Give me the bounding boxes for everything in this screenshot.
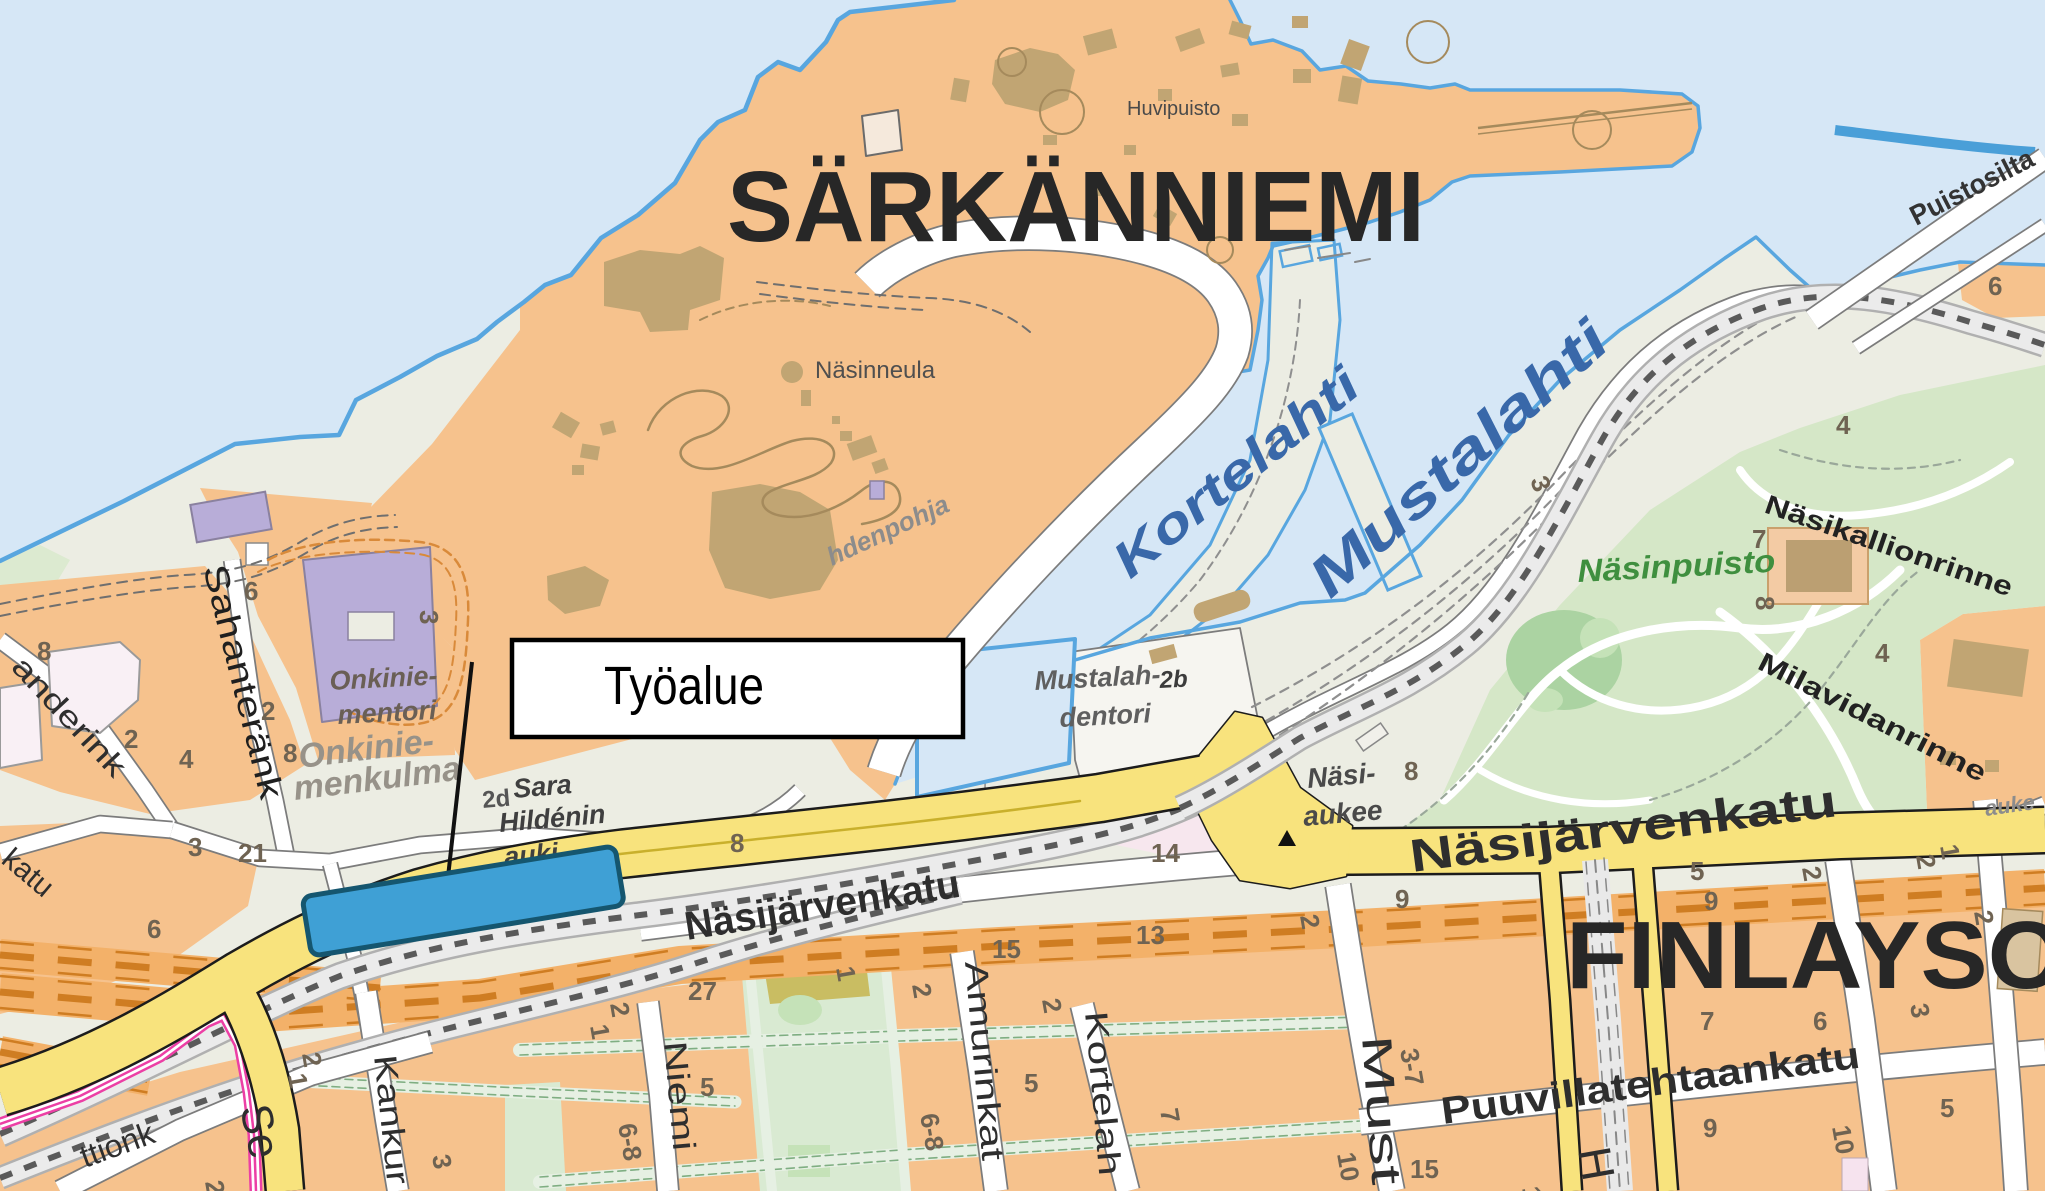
svg-text:5: 5: [1940, 1093, 1954, 1123]
svg-text:10: 10: [1331, 1150, 1366, 1184]
svg-text:3-7: 3-7: [1394, 1046, 1430, 1088]
svg-text:2d: 2d: [481, 785, 511, 814]
svg-text:9: 9: [1704, 886, 1718, 916]
svg-text:2: 2: [261, 696, 275, 726]
svg-text:6: 6: [244, 576, 258, 606]
svg-text:6: 6: [147, 914, 161, 944]
svg-text:Työalue: Työalue: [604, 656, 764, 716]
svg-text:2: 2: [124, 724, 138, 754]
svg-text:10: 10: [1826, 1123, 1861, 1157]
svg-text:8: 8: [1404, 756, 1418, 786]
svg-text:9: 9: [1395, 884, 1409, 914]
svg-text:Näsinneula: Näsinneula: [815, 357, 936, 384]
svg-text:27: 27: [688, 976, 717, 1006]
svg-text:6: 6: [1813, 1006, 1827, 1036]
svg-text:4: 4: [1875, 638, 1890, 668]
svg-text:4: 4: [1836, 410, 1851, 440]
svg-text:6: 6: [1988, 271, 2002, 301]
svg-text:4: 4: [179, 744, 194, 774]
svg-text:3: 3: [188, 832, 202, 862]
svg-text:8: 8: [283, 738, 297, 768]
svg-text:15: 15: [992, 934, 1021, 964]
svg-text:dentori: dentori: [1059, 698, 1152, 733]
svg-text:5: 5: [1690, 856, 1704, 886]
svg-text:15: 15: [1410, 1154, 1439, 1184]
svg-text:8: 8: [37, 636, 51, 666]
svg-text:9: 9: [1703, 1113, 1717, 1143]
svg-text:6-8: 6-8: [612, 1121, 648, 1163]
svg-text:5: 5: [1024, 1068, 1038, 1098]
svg-text:Huvipuisto: Huvipuisto: [1127, 98, 1220, 120]
svg-text:14: 14: [1151, 838, 1180, 868]
svg-text:SÄRKÄNNIEMI: SÄRKÄNNIEMI: [727, 151, 1425, 263]
svg-text:6-8: 6-8: [914, 1111, 950, 1153]
svg-text:21: 21: [238, 838, 267, 868]
svg-text:2b: 2b: [1158, 666, 1188, 694]
svg-text:Sara: Sara: [512, 769, 573, 804]
svg-text:7: 7: [1752, 524, 1766, 554]
svg-text:Näsi-: Näsi-: [1306, 757, 1377, 794]
svg-text:8: 8: [730, 828, 744, 858]
svg-text:Onkinie-: Onkinie-: [329, 660, 438, 696]
svg-text:7: 7: [1700, 1006, 1714, 1036]
svg-text:3: 3: [414, 610, 444, 624]
svg-text:13: 13: [1136, 920, 1165, 950]
svg-text:5: 5: [700, 1072, 714, 1102]
svg-text:8: 8: [1750, 596, 1780, 610]
